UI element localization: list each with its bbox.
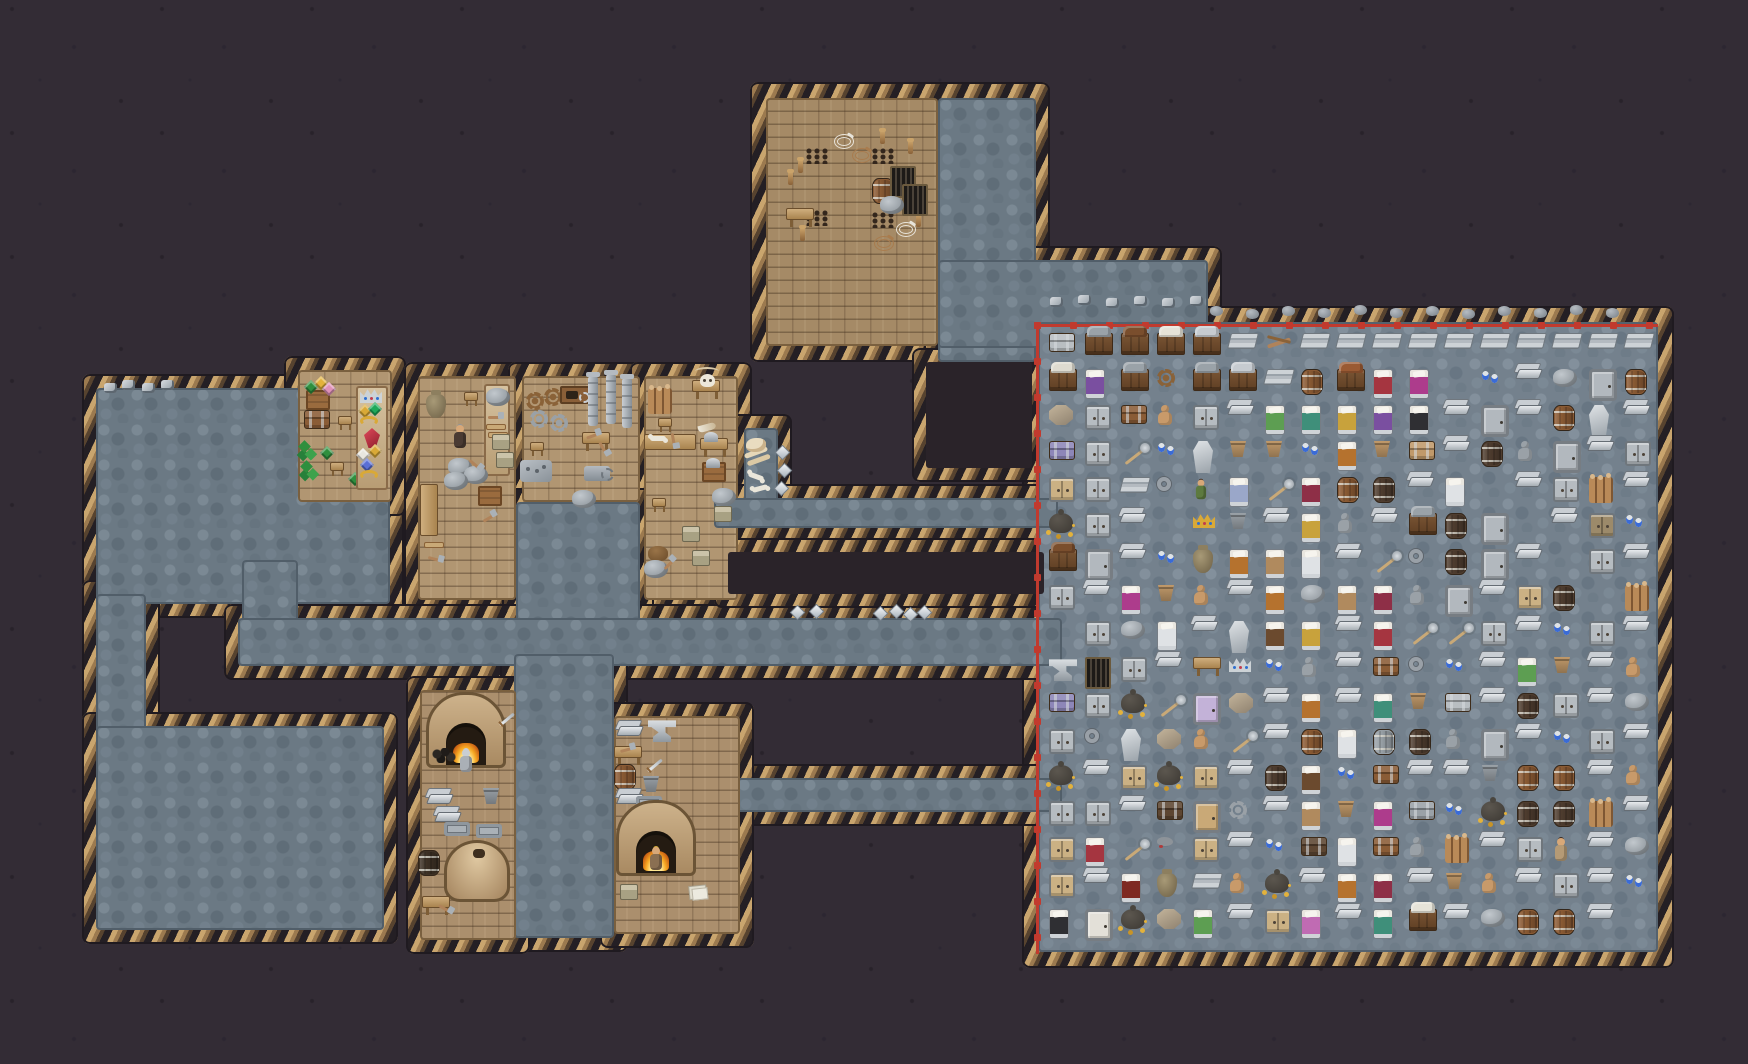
stockpile-item-amu[interactable] [1553,621,1571,637]
stockpile-item-mace[interactable] [1409,621,1439,651]
stockpile-item-chst[interactable] [1373,657,1399,676]
stockpile-item-amu[interactable] [1445,801,1463,817]
stockpile-item-fig[interactable] [1409,585,1425,605]
item-peg[interactable] [908,141,913,154]
stockpile-item-ring[interactable] [1409,657,1423,671]
stockpile-item-brl[interactable] [1553,765,1575,791]
stockpile-item-cab[interactable] [1049,837,1075,862]
stockpile-item-bed[interactable] [1301,513,1321,543]
stockpile-item-bin[interactable] [1049,549,1077,571]
stockpile-item-blocks[interactable] [1443,333,1475,349]
item-cube[interactable] [620,884,638,900]
stockpile-item-bar3[interactable] [1407,477,1435,487]
stockpile-item-dor[interactable] [1553,441,1581,473]
stockpile-item-bar3[interactable] [1227,405,1255,415]
stockpile-item-gear[interactable] [1157,369,1175,387]
stockpile-item-bed[interactable] [1301,477,1321,507]
stockpile-item-bag[interactable] [1121,909,1145,929]
stockpile-item-brl[interactable] [1553,405,1575,431]
stockpile-item-blocks[interactable] [1227,333,1259,349]
stockpile-item-bar3[interactable] [1227,765,1255,775]
item-bones[interactable] [742,438,772,464]
stockpile-item-rock[interactable] [1301,585,1325,603]
stockpile-item-dor[interactable] [1085,909,1113,941]
stockpile-item-bar3[interactable] [1479,693,1507,703]
stockpile-item-brl[interactable] [1553,801,1575,827]
stockpile-item-bed[interactable] [1373,369,1393,399]
stockpile-item-amu[interactable] [1337,765,1355,781]
stockpile-item-bar3[interactable] [1227,837,1255,847]
item-seeds[interactable] [872,212,894,228]
item-chst[interactable] [304,410,330,429]
stockpile-item-brl[interactable] [1373,477,1395,503]
stockpile-item-cab[interactable] [1589,729,1615,754]
stockpile-item-amu[interactable] [1157,549,1175,565]
item-goldj[interactable] [360,416,378,426]
stockpile-item-bar3[interactable] [1227,909,1255,919]
stockpile-item-blocks[interactable] [1191,873,1223,889]
stockpile-item-cab[interactable] [1049,585,1075,610]
stockpile-item-chst[interactable] [1049,441,1075,460]
stockpile-item-brl[interactable] [1445,549,1467,575]
stockpile-item-cof[interactable] [1229,621,1249,653]
stockpile-item-brl[interactable] [1553,909,1575,935]
stockpile-item-cof[interactable] [1121,729,1141,761]
stockpile-item-dor[interactable] [1445,585,1473,617]
item-stool[interactable] [530,442,544,451]
stockpile-item-bed[interactable] [1121,873,1141,903]
stockpile-item-rock[interactable] [1625,693,1649,711]
stockpile-item-bar3[interactable] [1443,441,1471,451]
stockpile-item-bar3[interactable] [1299,873,1327,883]
stockpile-item-mace[interactable] [1229,729,1259,759]
stockpile-item-rock[interactable] [1481,909,1505,927]
stockpile-item-bed[interactable] [1301,549,1321,579]
item-cube[interactable] [492,434,510,450]
stockpile-item-fig[interactable] [1517,441,1533,461]
character-dwarf-child[interactable] [1194,479,1208,499]
stockpile-item-fig[interactable] [1157,405,1173,425]
stockpile-item-bed[interactable] [1121,585,1141,615]
stockpile-item-bar3[interactable] [1587,441,1615,451]
stockpile-item-amu[interactable] [1265,657,1283,673]
stockpile-item-mace[interactable] [1121,441,1151,471]
stockpile-item-bed[interactable] [1373,909,1393,939]
stockpile-item-bar3[interactable] [1335,621,1363,631]
stockpile-item-amu[interactable] [1625,513,1643,529]
stockpile-item-cof[interactable] [1589,405,1609,437]
item-slab[interactable] [520,460,552,482]
stockpile-item-brl[interactable] [1445,513,1467,539]
stockpile-item-mace[interactable] [1265,477,1295,507]
stockpile-item-bed[interactable] [1337,405,1357,435]
stockpile-item-blocks[interactable] [1263,369,1295,385]
stockpile-item-amu[interactable] [1553,729,1571,745]
item-sword[interactable] [642,754,666,778]
stockpile-item-bar3[interactable] [1443,909,1471,919]
item-seeds[interactable] [872,148,894,164]
stockpile-item-bed[interactable] [1301,405,1321,435]
stockpile-item-cab[interactable] [1049,477,1075,502]
item-bone[interactable] [650,436,666,441]
stockpile-item-dor[interactable] [1481,729,1509,761]
item-cube[interactable] [682,526,700,542]
item-stool[interactable] [652,498,666,507]
stockpile-item-bed[interactable] [1517,657,1537,687]
stockpile-item-logs[interactable] [1625,585,1649,611]
stockpile-item-bin[interactable] [1121,333,1149,355]
item-gear[interactable] [550,414,568,432]
item-coal[interactable] [432,748,456,763]
stockpile-item-cab[interactable] [1085,621,1111,646]
stockpile-item-bar3[interactable] [1479,657,1507,667]
stockpile-item-bed[interactable] [1337,729,1357,759]
stockpile-item-bar3[interactable] [1515,477,1543,487]
stockpile-item-bar3[interactable] [1479,585,1507,595]
item-peg[interactable] [880,131,885,144]
stockpile-item-amu[interactable] [1445,657,1463,673]
stockpile-item-bed[interactable] [1265,405,1285,435]
item-gear[interactable] [530,410,548,428]
stockpile-item-bar3[interactable] [1083,765,1111,775]
stockpile-item-logs[interactable] [1445,837,1469,863]
stockpile-item-bar3[interactable] [1623,621,1651,631]
stockpile-item-bed[interactable] [1337,585,1357,615]
stockpile-item-fig[interactable] [1193,729,1209,749]
stockpile-item-bar3[interactable] [1119,513,1147,523]
stockpile-item-bar3[interactable] [1515,549,1543,559]
stockpile-item-fig[interactable] [1301,657,1317,677]
stockpile-item-bin[interactable] [1337,369,1365,391]
stockpile-item-bin[interactable] [1193,369,1221,391]
stockpile-item-blocks[interactable] [1119,477,1151,493]
stockpile-item-brl[interactable] [1625,369,1647,395]
stockpile-item-chst[interactable] [1409,801,1435,820]
stockpile-item-bed[interactable] [1337,837,1357,867]
item-tbl[interactable] [786,208,814,220]
stockpile-item-blocks[interactable] [1299,333,1331,349]
stockpile-item-bed[interactable] [1373,405,1393,435]
stockpile-item-cab[interactable] [1049,873,1075,898]
stockpile-item-cab[interactable] [1517,837,1543,862]
stockpile-item-bed[interactable] [1229,477,1249,507]
stockpile-item-chst[interactable] [1373,837,1399,856]
stockpile-item-bin[interactable] [1229,369,1257,391]
item-skull[interactable] [700,374,715,387]
stockpile-item-brl[interactable] [1517,801,1539,827]
stockpile-item-bar3[interactable] [1515,621,1543,631]
item-rock[interactable] [486,388,510,406]
stockpile-item-fig[interactable] [1229,873,1245,893]
stockpile-item-bar3[interactable] [1587,765,1615,775]
item-pipe[interactable] [606,374,616,424]
item-tool[interactable] [488,410,504,424]
item-logs[interactable] [648,388,672,414]
item-helm[interactable] [704,432,718,442]
stockpile-item-cab[interactable] [1085,513,1111,538]
stockpile-item-bin[interactable] [1049,369,1077,391]
item-rock[interactable] [712,488,736,506]
stockpile-item-cab[interactable] [1517,585,1543,610]
stockpile-item-bed[interactable] [1193,909,1213,939]
stockpile-item-bar3[interactable] [1191,621,1219,631]
stockpile-item-bar3[interactable] [1263,693,1291,703]
stockpile-item-bar3[interactable] [1335,693,1363,703]
stockpile-item-fig[interactable] [1409,837,1425,857]
stockpile-item-gear[interactable] [1229,801,1247,819]
stockpile-item-fig[interactable] [1193,585,1209,605]
stockpile-item-cab[interactable] [1553,477,1579,502]
stockpile-item-bed[interactable] [1301,801,1321,831]
stockpile-item-chst[interactable] [1049,693,1075,712]
game-map[interactable] [0,0,1748,1064]
stockpile-item-bag[interactable] [1265,873,1289,893]
stockpile-item-bar3[interactable] [1263,729,1291,739]
stockpile-item-bed[interactable] [1445,477,1465,507]
stockpile-item-chst[interactable] [1409,441,1435,460]
stockpile-item-mace[interactable] [1121,837,1151,867]
stockpile-item-bar3[interactable] [1587,909,1615,919]
stockpile-item-brl[interactable] [1337,477,1359,503]
character-dwarf-smith[interactable] [648,846,664,870]
item-brl[interactable] [614,764,636,790]
stockpile-item-bar3[interactable] [1623,405,1651,415]
stockpile-item-blocks[interactable] [1623,333,1655,349]
region-corr-upper-floor[interactable] [714,498,1058,528]
stockpile-item-bin[interactable] [1157,333,1185,355]
stockpile-item-chst[interactable] [1049,333,1075,352]
item-stool[interactable] [658,418,672,427]
stockpile-item-cage[interactable] [1085,657,1111,689]
stockpile-item-brl[interactable] [1517,693,1539,719]
stockpile-item-bin[interactable] [1193,333,1221,355]
stockpile-item-bar3[interactable] [1335,909,1363,919]
stockpile-item-bed[interactable] [1085,837,1105,867]
item-bar3[interactable] [434,812,462,822]
stockpile-item-bar3[interactable] [1587,693,1615,703]
stockpile-item-bed[interactable] [1373,873,1393,903]
stockpile-item-bar3[interactable] [1587,837,1615,847]
stockpile-item-blocks[interactable] [1479,333,1511,349]
stockpile-item-bed[interactable] [1337,441,1357,471]
stockpile-item-blocks[interactable] [1371,333,1403,349]
item-machg[interactable] [584,466,610,481]
stockpile-item-bar3[interactable] [1227,585,1255,595]
item-plank[interactable] [486,424,506,430]
stockpile-item-dor[interactable] [1481,513,1509,545]
stockpile-item-bed[interactable] [1157,621,1177,651]
stockpile-item-bar3[interactable] [1083,873,1111,883]
stockpile-item-cab[interactable] [1193,837,1219,862]
stockpile-item-cab[interactable] [1085,693,1111,718]
stockpile-item-bed[interactable] [1301,621,1321,651]
stockpile-item-bin[interactable] [1409,909,1437,931]
stockpile-item-bar3[interactable] [1587,657,1615,667]
stockpile-item-bar3[interactable] [1515,729,1543,739]
item-peg[interactable] [798,160,803,173]
stockpile-item-bed[interactable] [1265,585,1285,615]
stockpile-item-fig[interactable] [1625,765,1641,785]
stockpile-item-blocks[interactable] [1335,333,1367,349]
stockpile-item-dor[interactable] [1085,549,1113,581]
item-rope[interactable] [896,222,916,237]
region-hall-sw-floor[interactable] [96,726,384,930]
stockpile-item-bin[interactable] [1085,333,1113,355]
stockpile-item-amu[interactable] [1301,441,1319,457]
stockpile-item-bed[interactable] [1229,549,1249,579]
stockpile-item-bows[interactable] [1265,333,1293,351]
stockpile-item-rat[interactable] [1157,837,1173,846]
stockpile-item-bin[interactable] [1121,369,1149,391]
stockpile-item-bar3[interactable] [1479,837,1507,847]
stockpile-item-bar3[interactable] [1515,873,1543,883]
item-stool[interactable] [330,462,344,471]
item-cube[interactable] [496,452,514,468]
item-gems[interactable] [300,458,326,476]
stockpile-item-bed[interactable] [1301,693,1321,723]
stockpile-item-chst[interactable] [1445,693,1471,712]
stockpile-item-dor[interactable] [1481,549,1509,581]
stockpile-item-bar3[interactable] [1335,657,1363,667]
stockpile-item-chst[interactable] [1121,405,1147,424]
stockpile-item-bed[interactable] [1373,693,1393,723]
stockpile-item-amu[interactable] [1481,369,1499,385]
item-cube[interactable] [692,550,710,566]
stockpile-item-bar3[interactable] [1443,765,1471,775]
item-brl[interactable] [418,850,440,876]
item-tray[interactable] [444,822,470,836]
stockpile-item-brl[interactable] [1517,909,1539,935]
stockpile-item-rock[interactable] [1121,621,1145,639]
stockpile-item-cab[interactable] [1193,405,1219,430]
stockpile-item-brl[interactable] [1409,729,1431,755]
item-rope[interactable] [834,134,854,149]
stockpile-item-bar3[interactable] [1263,801,1291,811]
item-crate[interactable] [478,486,502,506]
character-dwarf-armor[interactable] [458,748,474,772]
stockpile-item-blocks[interactable] [1587,333,1619,349]
item-tray[interactable] [476,824,502,838]
stockpile-item-bed[interactable] [1373,801,1393,831]
stockpile-item-bed[interactable] [1265,621,1285,651]
stockpile-item-amu[interactable] [1265,837,1283,853]
stockpile-item-bed[interactable] [1265,549,1285,579]
item-cage[interactable] [902,184,928,216]
stockpile-item-bar3[interactable] [1155,657,1183,667]
stockpile-item-bed[interactable] [1373,585,1393,615]
stockpile-item-cab[interactable] [1265,909,1291,934]
item-rock[interactable] [880,196,904,214]
region-hall-stub-floor[interactable] [242,560,298,624]
stockpile-item-bed[interactable] [1409,369,1429,399]
stockpile-item-cab[interactable] [1553,873,1579,898]
stockpile-item-bar3[interactable] [1443,405,1471,415]
stockpile-item-cab[interactable] [1085,801,1111,826]
stockpile-item-cab[interactable] [1085,441,1111,466]
stockpile-item-amu[interactable] [1625,873,1643,889]
stockpile-item-tbl[interactable] [1193,657,1221,669]
stockpile-item-bed[interactable] [1337,873,1357,903]
stockpile-item-mace[interactable] [1445,621,1475,651]
item-rope[interactable] [852,148,872,163]
stockpile-item-bar3[interactable] [1083,585,1111,595]
stockpile-item-cab[interactable] [1121,657,1147,682]
stockpile-item-brl[interactable] [1553,585,1575,611]
region-corr-south-floor[interactable] [736,778,1062,812]
stockpile-item-cab[interactable] [1193,765,1219,790]
stockpile-item-dor[interactable] [1481,405,1509,437]
item-helm[interactable] [706,458,720,468]
stockpile-item-fig[interactable] [1481,873,1497,893]
stockpile-item-cab[interactable] [1589,513,1615,538]
item-pipe[interactable] [622,378,632,428]
region-passage-w-floor[interactable] [96,594,146,742]
item-peg[interactable] [788,172,793,185]
stockpile-item-chst[interactable] [1157,801,1183,820]
stockpile-item-bar3[interactable] [1623,549,1651,559]
stockpile-item-brl[interactable] [1301,729,1323,755]
stockpile-item-bag[interactable] [1049,513,1073,533]
stockpile-item-bar3[interactable] [1119,801,1147,811]
stockpile-item-bed[interactable] [1085,369,1105,399]
stockpile-item-ring[interactable] [1409,549,1423,563]
item-bar3[interactable] [426,794,454,804]
stockpile-item-bar3[interactable] [1119,549,1147,559]
item-rope[interactable] [874,236,894,251]
stockpile-item-bar3[interactable] [1515,369,1543,379]
character-dwarf-mason[interactable] [452,424,468,448]
stockpile-item-cab[interactable] [1085,477,1111,502]
stockpile-item-brl[interactable] [1373,729,1395,755]
item-rock[interactable] [572,490,596,508]
stockpile-item-chst[interactable] [1373,765,1399,784]
stockpile-item-chst[interactable] [1301,837,1327,856]
stockpile-item-bar3[interactable] [1407,873,1435,883]
stockpile-item-blocks[interactable] [1515,333,1547,349]
item-goldj[interactable] [360,470,378,480]
stockpile-item-bar3[interactable] [1623,801,1651,811]
stockpile-item-bag[interactable] [1121,693,1145,713]
stockpile-item-cof[interactable] [1193,441,1213,473]
item-peg[interactable] [800,228,805,241]
stockpile-item-logs[interactable] [1589,477,1613,503]
stockpile-item-bar3[interactable] [1335,549,1363,559]
stockpile-item-bar3[interactable] [1623,477,1651,487]
stockpile-item-bar3[interactable] [1407,765,1435,775]
stockpile-item-cab[interactable] [1589,621,1615,646]
stockpile-item-bar3[interactable] [1263,513,1291,523]
item-pipe[interactable] [588,376,598,426]
stockpile-item-rock[interactable] [1553,369,1577,387]
item-rock[interactable] [444,472,468,490]
stockpile-item-bed[interactable] [1373,621,1393,651]
item-papers[interactable] [691,887,708,901]
item-benchv[interactable] [420,484,438,536]
stockpile-item-brl[interactable] [1301,369,1323,395]
stockpile-item-bar3[interactable] [1515,405,1543,415]
stockpile-item-brl[interactable] [1517,765,1539,791]
stockpile-item-bag[interactable] [1481,801,1505,821]
stockpile-item-dor[interactable] [1193,693,1221,725]
stockpile-item-cab[interactable] [1481,621,1507,646]
item-sword[interactable] [494,708,518,732]
stockpile-item-bag[interactable] [1049,765,1073,785]
region-corr-long-floor[interactable] [238,618,1062,666]
stockpile-item-bar3[interactable] [1371,513,1399,523]
stockpile-item-cab[interactable] [1085,405,1111,430]
stockpile-item-dor[interactable] [1193,801,1221,833]
stockpile-item-bin[interactable] [1409,513,1437,535]
